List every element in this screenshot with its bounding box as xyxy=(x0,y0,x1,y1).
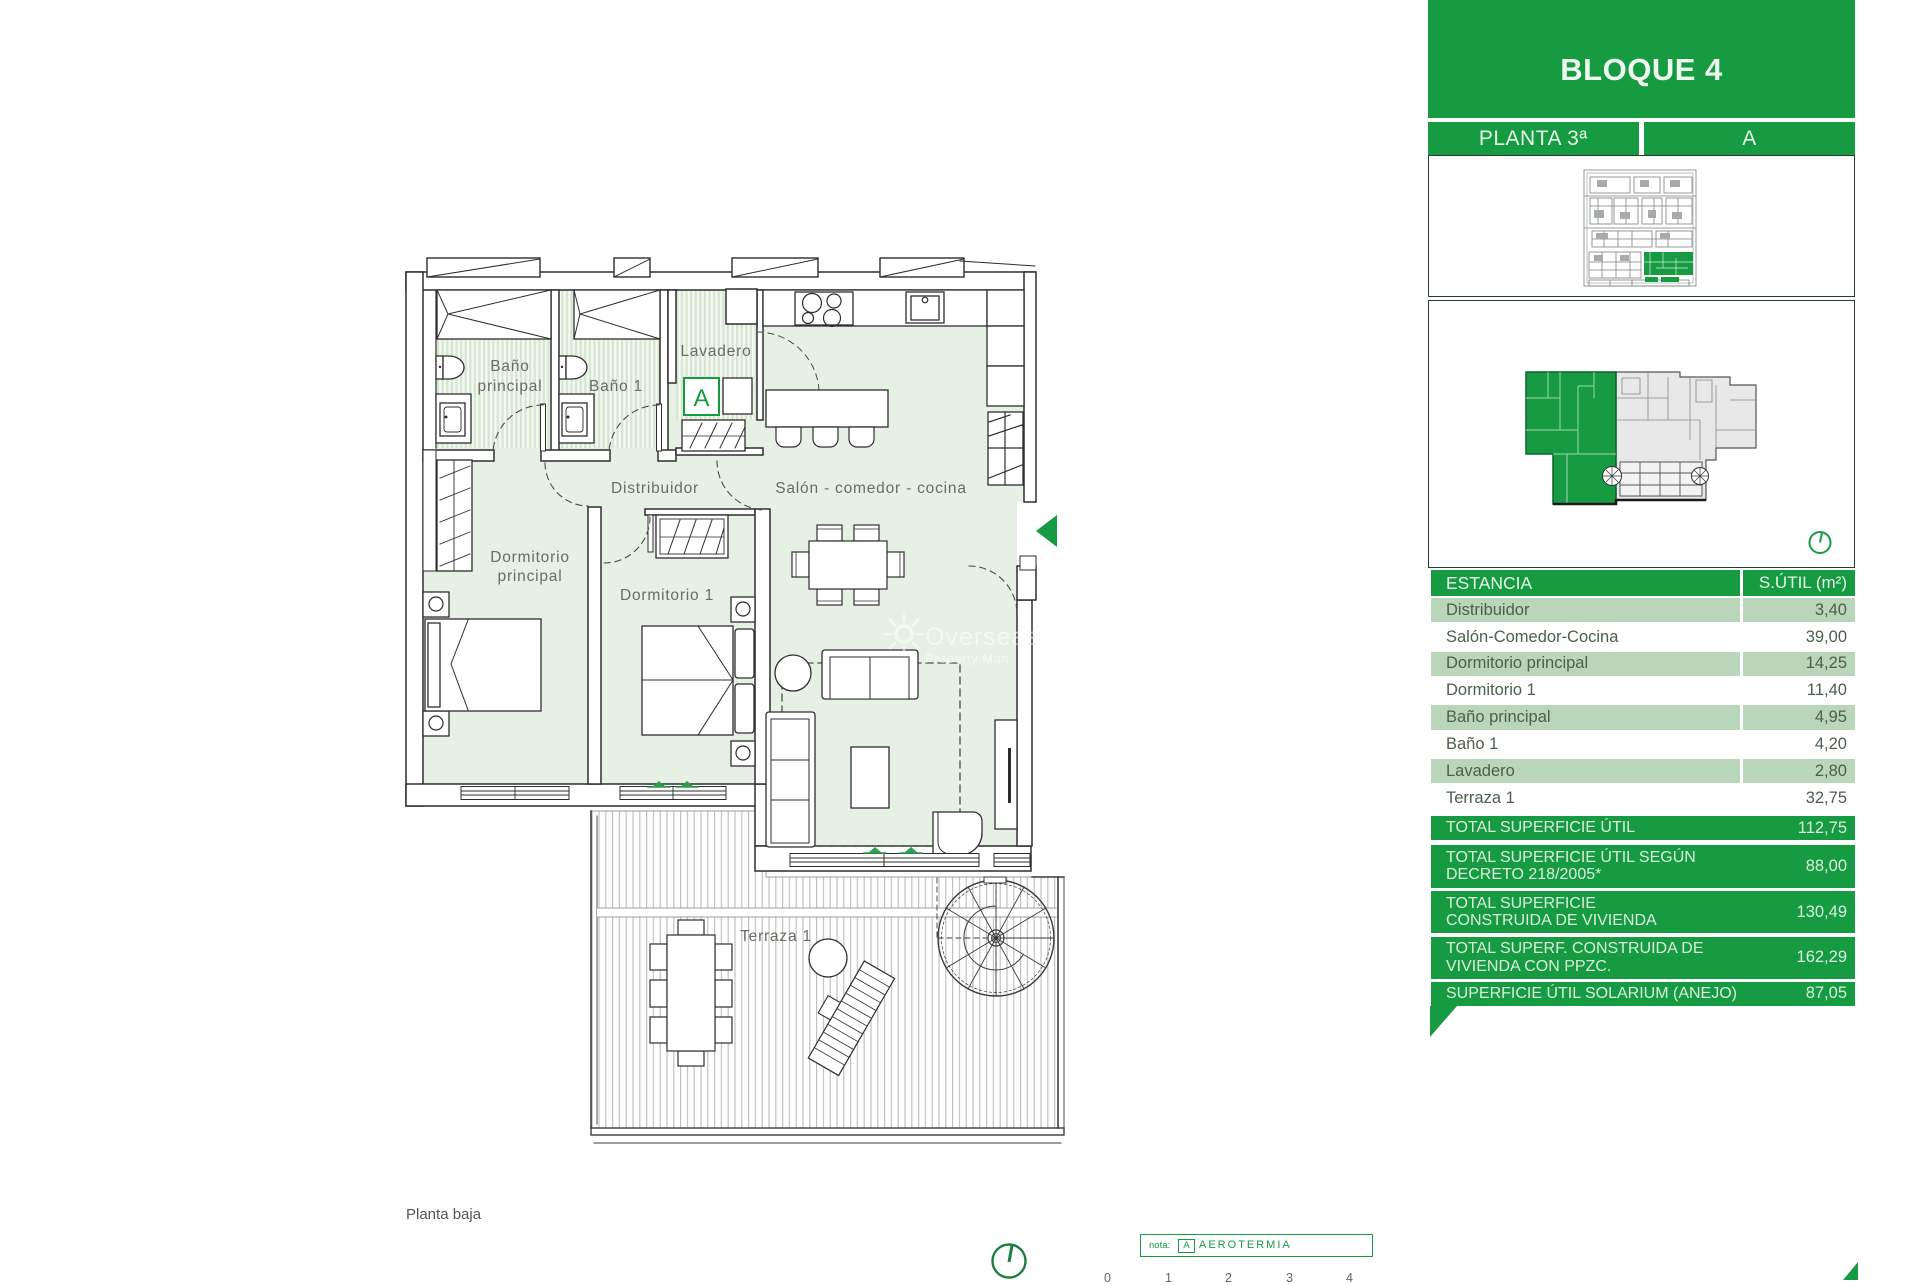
svg-text:Dormitorio 1: Dormitorio 1 xyxy=(620,587,714,604)
svg-text:Lavadero: Lavadero xyxy=(680,343,751,360)
svg-text:Distribuidor: Distribuidor xyxy=(611,480,699,497)
svg-text:Terraza 1: Terraza 1 xyxy=(740,928,812,945)
svg-text:Overseas: Overseas xyxy=(925,623,1040,651)
svg-text:Dormitorio: Dormitorio xyxy=(490,549,569,566)
svg-text:Property Man: Property Man xyxy=(925,651,1009,666)
svg-text:Baño: Baño xyxy=(490,358,529,375)
svg-text:Salón - comedor - cocina: Salón - comedor - cocina xyxy=(775,480,967,497)
svg-text:A: A xyxy=(693,385,709,412)
svg-text:principal: principal xyxy=(498,568,563,585)
svg-text:Baño 1: Baño 1 xyxy=(589,378,643,395)
svg-text:principal: principal xyxy=(478,378,543,395)
